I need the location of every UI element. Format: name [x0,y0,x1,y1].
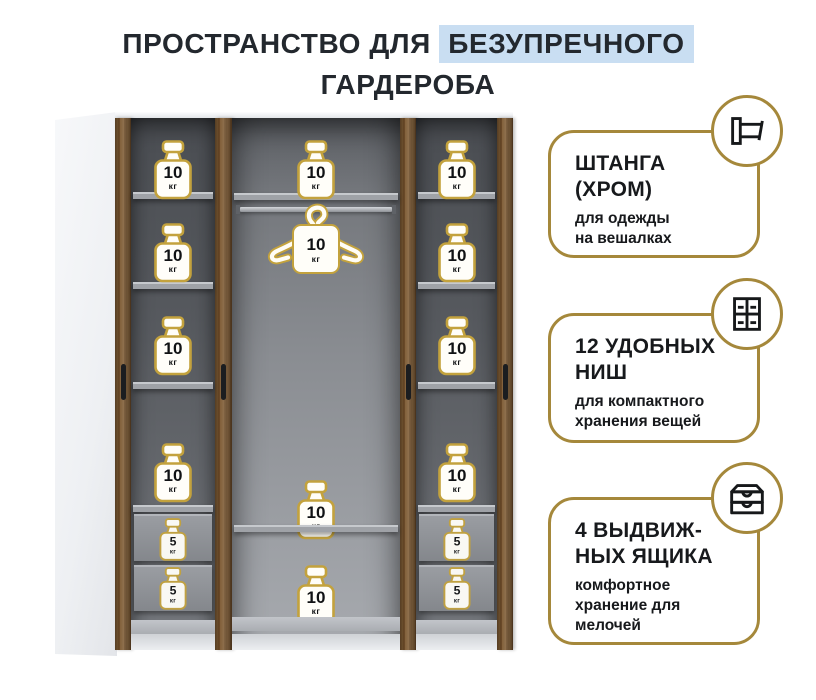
callout-title: ШТАНГА (ХРОМ) [575,151,743,202]
cabinet-floor [416,620,497,634]
door-handle-icon [406,364,411,400]
wardrobe-right-column: 10 кг 10 кг 10 кг 10 кг [416,118,497,650]
callout-icon-circle [711,462,783,534]
weight-capacity-badge: 10 кг [150,223,196,283]
wardrobe-door-2 [215,118,232,650]
weight-capacity-badge: 10 кг [434,140,480,200]
weight-capacity-badge: 10 кг [150,140,196,200]
callout-icon-circle [711,95,783,167]
title-line-2: ГАРДЕРОБА [0,65,816,104]
rod-mount [236,205,240,214]
shelf [133,505,213,512]
weight-capacity-badge: 10 кг [434,316,480,376]
cabinet-base [416,634,497,650]
wardrobe-front: 10 кг 10 кг 10 кг 10 кг [115,118,513,650]
weight-capacity-badge: 5 кг [440,518,473,561]
weight-capacity-badge: 10 кг [434,223,480,283]
cabinet-floor [232,617,400,631]
door-handle-icon [503,364,508,400]
callout-rod: ШТАНГА (ХРОМ) для одежды на вешалках [548,130,760,258]
cabinet-base [232,634,400,650]
drawers-icon [724,475,770,521]
weight-capacity-badge: 10 кг [150,316,196,376]
wardrobe-side-panel [55,112,117,656]
callout-niches: 12 УДОБНЫХ НИШ для компактного хранения … [548,313,760,443]
weight-capacity-badge: 5 кг [156,518,189,561]
door-handle-icon [121,364,126,400]
callout-description: для одежды на вешалках [575,209,743,249]
callout-description: для компактного хранения вещей [575,392,743,432]
cabinet-base [131,634,215,650]
shelf [418,282,495,289]
shelf [234,525,398,532]
shelf [418,382,495,389]
title-highlight: БЕЗУПРЕЧНОГО [439,25,693,63]
callout-title: 4 ВЫДВИЖ- НЫХ ЯЩИКА [575,518,743,569]
wardrobe-left-column: 10 кг 10 кг 10 кг 10 кг [131,118,215,650]
callout-box: ШТАНГА (ХРОМ) для одежды на вешалках [548,130,760,258]
door-handle-icon [221,364,226,400]
callout-box: 4 ВЫДВИЖ- НЫХ ЯЩИКА комфортное хранение … [548,497,760,645]
wardrobe-door-1 [115,118,131,650]
clothes-rail-icon [724,108,770,154]
wardrobe-infographic: ПРОСТРАНСТВО ДЛЯ БЕЗУПРЕЧНОГО ГАРДЕРОБА … [0,0,816,700]
cabinet-floor [131,620,215,634]
callout-icon-circle [711,278,783,350]
weight-capacity-badge: 5 кг [440,567,473,610]
shelf [418,505,495,512]
page-title: ПРОСТРАНСТВО ДЛЯ БЕЗУПРЕЧНОГО ГАРДЕРОБА [0,24,816,104]
callout-drawers: 4 ВЫДВИЖ- НЫХ ЯЩИКА комфортное хранение … [548,497,760,645]
weight-capacity-badge: 10 кг [150,443,196,503]
weight-capacity-badge: 5 кг [156,567,189,610]
weight-capacity-badge: 10 кг [293,140,339,200]
weight-capacity-badge: 10 кг [434,443,480,503]
rod-mount [392,205,396,214]
hanger-weight-badge: 10 кг [292,224,340,274]
shelf [133,282,213,289]
callout-box: 12 УДОБНЫХ НИШ для компактного хранения … [548,313,760,443]
wardrobe-door-3 [400,118,416,650]
wardrobe-door-4 [497,118,513,650]
callout-title: 12 УДОБНЫХ НИШ [575,334,743,385]
weight-capacity-badge: 10 кг [293,565,339,625]
niches-grid-icon [724,291,770,337]
wardrobe-illustration: 10 кг 10 кг 10 кг 10 кг [55,112,513,660]
callout-description: комфортное хранение для мелочей [575,576,743,635]
shelf [133,382,213,389]
wardrobe-middle-column: 10 кг 10 кг [232,118,400,650]
title-line-1: ПРОСТРАНСТВО ДЛЯ БЕЗУПРЕЧНОГО [0,24,816,63]
title-prefix: ПРОСТРАНСТВО ДЛЯ [122,28,431,59]
